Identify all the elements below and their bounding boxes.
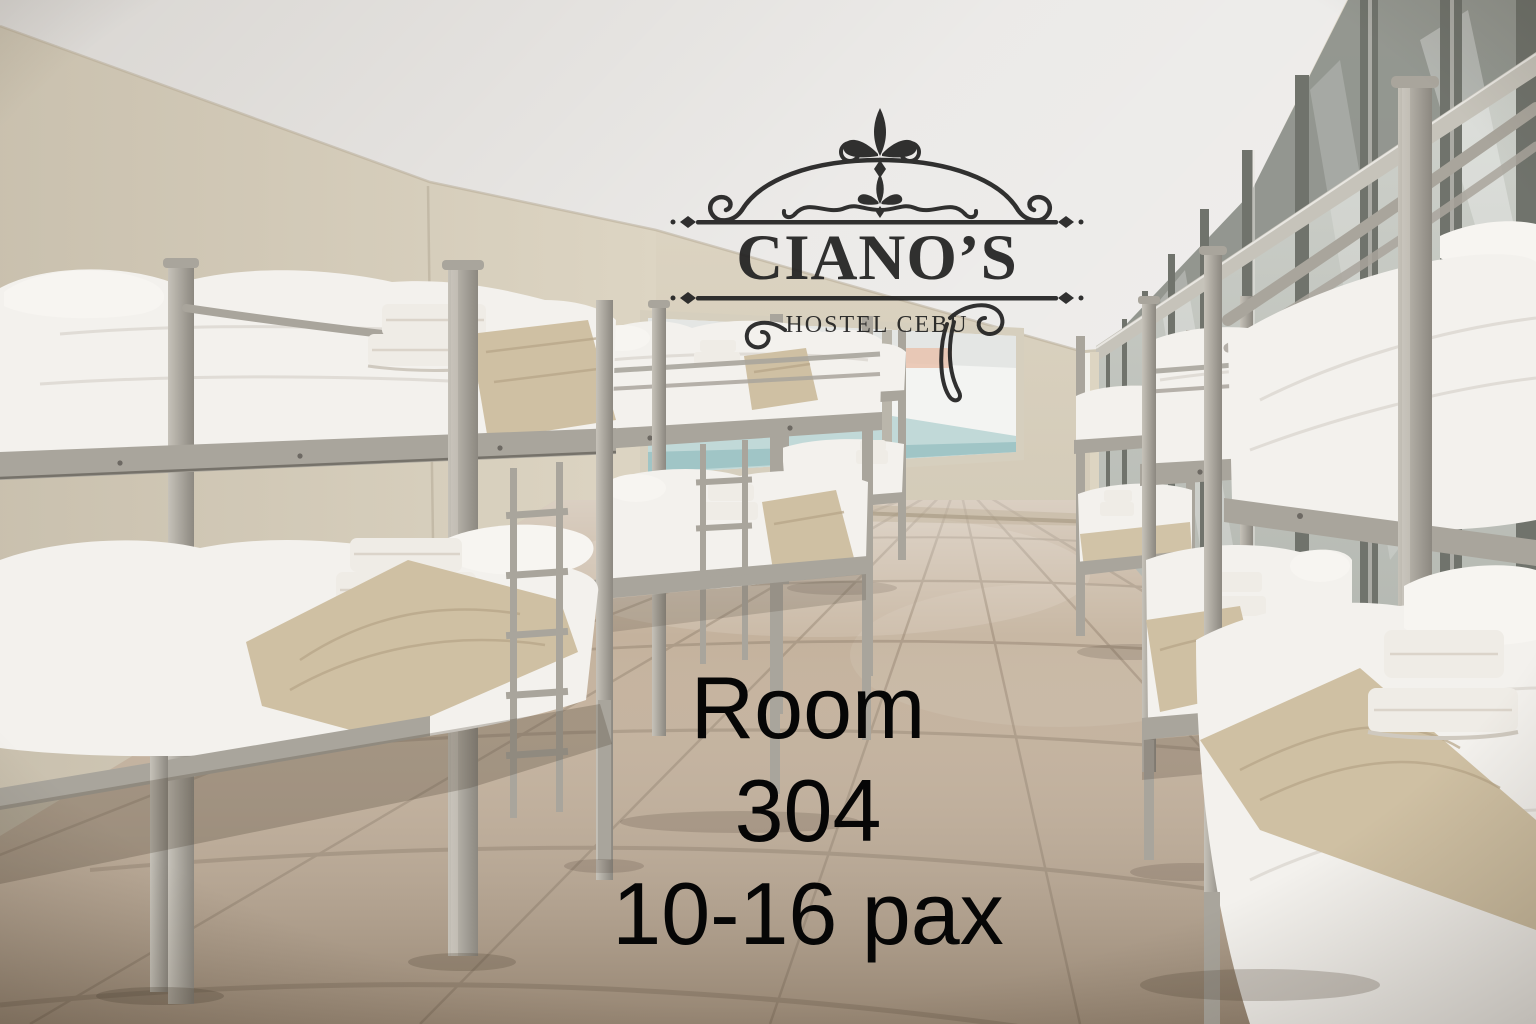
- logo-subtitle: HOSTEL CEBU: [661, 313, 1093, 337]
- room-caption: Room 304 10-16 pax: [458, 656, 1158, 965]
- hostel-logo: CIANO’S HOSTEL CEBU: [661, 92, 1093, 432]
- caption-line-number: 304: [458, 759, 1158, 862]
- caption-line-pax: 10-16 pax: [458, 862, 1158, 965]
- logo-title: CIANO’S: [661, 226, 1093, 291]
- hostel-dorm-photo: CIANO’S HOSTEL CEBU Room 304 10-16 pax: [0, 0, 1536, 1024]
- caption-line-room: Room: [458, 656, 1158, 759]
